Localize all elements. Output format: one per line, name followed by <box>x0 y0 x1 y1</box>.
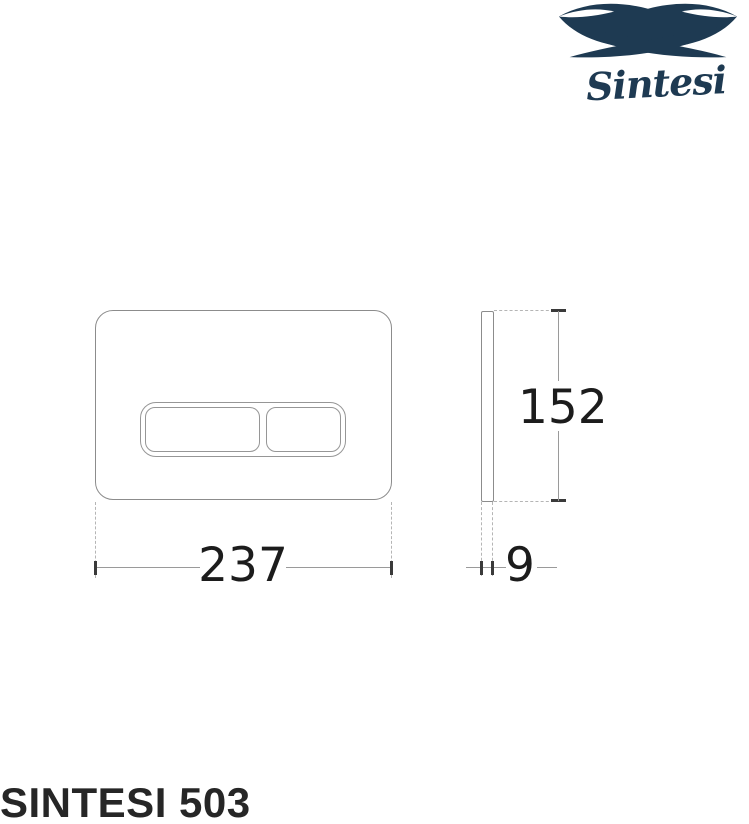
extension-line-bottom <box>494 501 554 502</box>
extension-line-top <box>494 310 554 311</box>
depth-dim-line-right <box>537 567 557 568</box>
depth-dim-tick-left <box>480 561 483 575</box>
large-flush-button <box>145 407 260 452</box>
width-dim-tick-right <box>390 561 393 575</box>
depth-dim-line-left <box>466 567 506 568</box>
flush-plate-front-view <box>95 310 392 500</box>
width-dim-line-right <box>286 567 392 568</box>
product-spec-sheet: Sintesi 237 152 9 SINTESI 503 <box>0 0 749 824</box>
width-dim-tick-left <box>94 561 97 575</box>
height-dimension-value: 152 <box>518 384 598 431</box>
product-model-title: SINTESI 503 <box>0 782 251 824</box>
small-flush-button <box>266 407 341 452</box>
height-dim-line-lower <box>558 431 559 501</box>
sintesi-logo-icon <box>556 0 740 60</box>
width-dimension-value: 237 <box>195 542 291 589</box>
depth-dimension-value: 9 <box>502 542 538 589</box>
brand-wordmark: Sintesi <box>585 59 717 109</box>
width-dim-line-left <box>95 567 200 568</box>
depth-dim-tick-right <box>491 561 494 575</box>
height-dim-line-upper <box>558 311 559 381</box>
flush-plate-side-view <box>481 311 494 502</box>
